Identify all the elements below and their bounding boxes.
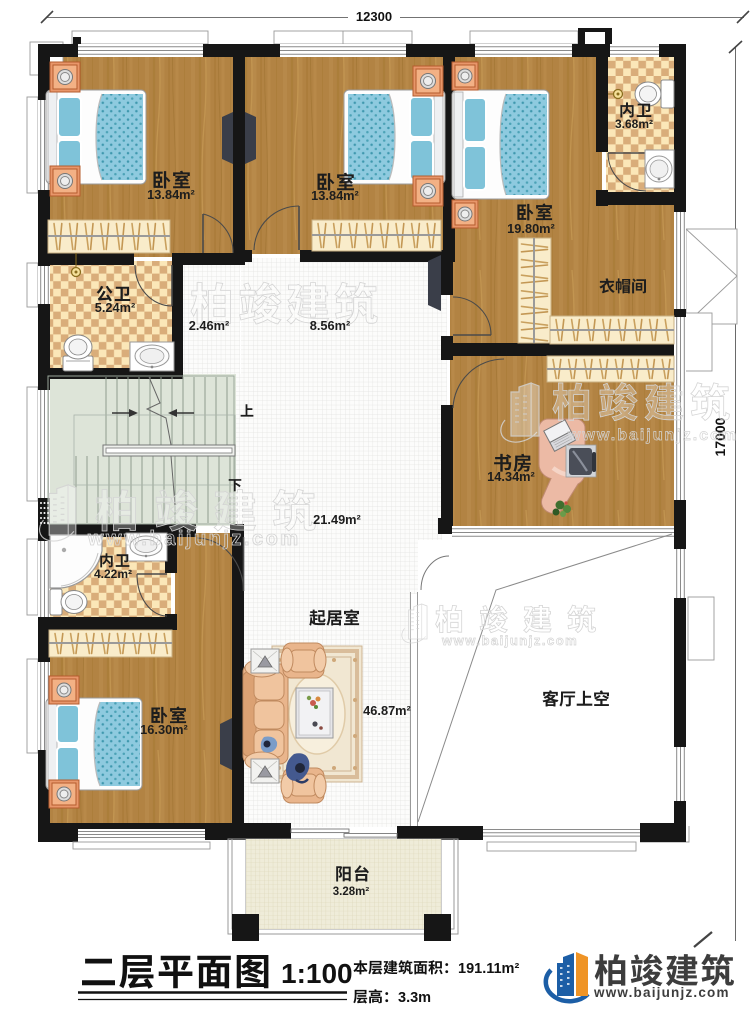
svg-text:191.11m²: 191.11m² <box>458 961 519 977</box>
svg-text:21.49m²: 21.49m² <box>313 512 361 527</box>
svg-text:12300: 12300 <box>356 9 392 24</box>
svg-text:www.baijunjz.com: www.baijunjz.com <box>593 985 730 1000</box>
svg-text:3.68m²: 3.68m² <box>615 117 653 131</box>
svg-text:46.87m²: 46.87m² <box>363 703 411 718</box>
svg-text:16.30m²: 16.30m² <box>140 722 188 737</box>
svg-text:www.baijunjz.com: www.baijunjz.com <box>441 633 578 648</box>
svg-text:2.46m²: 2.46m² <box>189 318 230 333</box>
svg-text:13.84m²: 13.84m² <box>311 188 359 203</box>
svg-text:5.24m²: 5.24m² <box>95 300 136 315</box>
svg-text:19.80m²: 19.80m² <box>507 221 555 236</box>
svg-text:13.84m²: 13.84m² <box>147 187 195 202</box>
svg-text:14.34m²: 14.34m² <box>487 469 535 484</box>
svg-text:4.22m²: 4.22m² <box>94 567 132 581</box>
svg-text:1:100: 1:100 <box>281 958 353 989</box>
svg-text:3.3m: 3.3m <box>398 990 431 1006</box>
svg-text:8.56m²: 8.56m² <box>310 318 351 333</box>
svg-text:www.baijunjz.com: www.baijunjz.com <box>87 528 301 550</box>
svg-text:www.baijunjz.com: www.baijunjz.com <box>567 427 738 444</box>
svg-text:3.28m²: 3.28m² <box>333 886 370 898</box>
